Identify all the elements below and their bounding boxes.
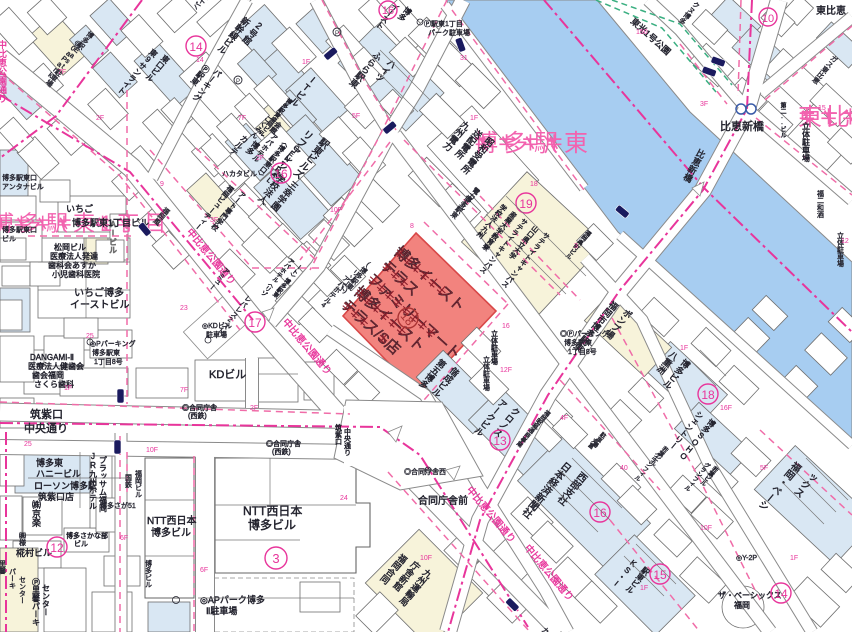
svg-text:1F: 1F xyxy=(790,555,798,562)
svg-text:博多ビル: 博多ビル xyxy=(151,526,191,539)
svg-text:ハニービル: ハニービル xyxy=(36,469,81,479)
svg-text:P: P xyxy=(236,79,240,85)
svg-text:◎Y-2P: ◎Y-2P xyxy=(736,555,757,562)
svg-text:13: 13 xyxy=(493,434,507,448)
svg-text:(西鉄): (西鉄) xyxy=(272,447,291,456)
svg-text:㈱様: ㈱様 xyxy=(19,531,27,546)
svg-text:1F: 1F xyxy=(302,59,310,66)
svg-text:1F: 1F xyxy=(470,115,478,122)
svg-text:10F: 10F xyxy=(420,555,432,562)
svg-text:16: 16 xyxy=(382,5,394,17)
svg-text:40: 40 xyxy=(620,465,628,472)
svg-text:博多駅東1丁目ビル: 博多駅東1丁目ビル xyxy=(72,217,149,228)
svg-text:P: P xyxy=(335,31,339,37)
svg-text:◎合同庁舎: ◎合同庁舎 xyxy=(182,403,217,412)
svg-text:ハカタビル: ハカタビル xyxy=(222,169,257,178)
svg-text:7F: 7F xyxy=(180,387,188,394)
svg-text:9: 9 xyxy=(160,181,164,188)
svg-text:福岡ビル: 福岡ビル xyxy=(135,469,143,498)
svg-text:3F: 3F xyxy=(210,217,218,224)
svg-text:第二..ビル: 第二..ビル xyxy=(779,101,786,138)
svg-text:いちご: いちご xyxy=(66,203,93,214)
svg-text:センター: センター xyxy=(19,576,27,604)
svg-text:◎KDビル: ◎KDビル xyxy=(202,321,232,330)
svg-text:合同庁舎前: 合同庁舎前 xyxy=(418,494,468,507)
svg-text:10F: 10F xyxy=(330,207,342,214)
svg-text:6F: 6F xyxy=(200,567,208,574)
svg-text:㈱京楽: ㈱京楽 xyxy=(31,499,41,528)
svg-text:福二和酒: 福二和酒 xyxy=(817,189,825,219)
svg-text:17: 17 xyxy=(248,316,262,330)
svg-text:博多駅東口: 博多駅東口 xyxy=(2,173,37,182)
svg-text:博多駅東口: 博多駅東口 xyxy=(2,225,37,234)
svg-text:12F: 12F xyxy=(500,367,512,374)
svg-text:センター: センター xyxy=(42,584,51,616)
svg-text:イーストビル: イーストビル xyxy=(70,299,130,311)
svg-text:18: 18 xyxy=(530,181,538,188)
svg-text:6F: 6F xyxy=(120,535,128,542)
svg-text:比恵新橋: 比恵新橋 xyxy=(720,119,764,133)
svg-text:筑紫口: 筑紫口 xyxy=(30,407,63,421)
svg-text:立体駐車場: 立体駐車場 xyxy=(483,355,491,392)
svg-text:a: a xyxy=(96,221,100,228)
svg-text:博多駅東: 博多駅東 xyxy=(564,338,592,347)
svg-text:松岡ビル: 松岡ビル xyxy=(54,242,86,252)
svg-text:歯会福岡: 歯会福岡 xyxy=(32,370,64,380)
svg-text:23: 23 xyxy=(180,305,188,312)
svg-text:4F: 4F xyxy=(560,415,568,422)
svg-text:パーク駐車場: パーク駐車場 xyxy=(428,28,470,37)
svg-text:1F: 1F xyxy=(680,345,688,352)
svg-text:Ⅱ駐車場: Ⅱ駐車場 xyxy=(206,605,237,616)
svg-text:筑紫口: 筑紫口 xyxy=(335,423,343,445)
svg-text:10F: 10F xyxy=(700,525,712,532)
svg-text:2F: 2F xyxy=(250,405,258,412)
svg-text:KDビル: KDビル xyxy=(209,368,246,381)
svg-text:15: 15 xyxy=(818,105,826,112)
svg-text:立体駐車場: 立体駐車場 xyxy=(837,231,845,268)
svg-text:12: 12 xyxy=(841,238,849,245)
svg-text:5F: 5F xyxy=(352,113,360,120)
svg-text:ビル: ビル xyxy=(74,539,88,548)
svg-text:中央通り: 中央通り xyxy=(24,422,68,435)
svg-text:14: 14 xyxy=(774,587,788,601)
svg-text:JR九州ホテル: JR九州ホテル xyxy=(89,452,98,510)
svg-text:国鉄: 国鉄 xyxy=(125,474,133,489)
svg-text:医療法人健歯会: 医療法人健歯会 xyxy=(28,361,84,371)
svg-text:1丁目8号: 1丁目8号 xyxy=(568,348,597,356)
svg-text:19: 19 xyxy=(519,197,533,211)
svg-text:博多駅東: 博多駅東 xyxy=(92,348,120,357)
svg-text:アンタナビル: アンタナビル xyxy=(2,182,44,191)
svg-text:里馨: 里馨 xyxy=(0,560,6,575)
svg-text:16: 16 xyxy=(274,167,288,181)
svg-text:いちご博多: いちご博多 xyxy=(74,286,124,299)
svg-text:小児歯科医院: 小児歯科医院 xyxy=(52,269,100,279)
svg-text:2F: 2F xyxy=(96,115,104,122)
svg-text:博多さが51: 博多さが51 xyxy=(100,501,136,510)
svg-text:博多東: 博多東 xyxy=(36,457,63,468)
svg-text:1丁目8号: 1丁目8号 xyxy=(94,358,123,366)
svg-text:14: 14 xyxy=(189,40,203,54)
svg-text:2F: 2F xyxy=(256,155,264,162)
svg-text:12: 12 xyxy=(50,541,64,555)
svg-text:◎Pパーキング: ◎Pパーキング xyxy=(90,339,136,348)
svg-text:25: 25 xyxy=(24,441,32,448)
svg-text:NTT西日本: NTT西日本 xyxy=(243,504,302,518)
svg-text:10F: 10F xyxy=(146,447,158,454)
svg-text:DANGAMI-Ⅱ: DANGAMI-Ⅱ xyxy=(30,353,74,362)
svg-text:立体駐車場: 立体駐車場 xyxy=(491,329,499,366)
svg-text:Ⓟ駅東1丁目: Ⓟ駅東1丁目 xyxy=(424,19,463,28)
svg-text:25: 25 xyxy=(86,333,94,340)
svg-text:医療法人発達: 医療法人発達 xyxy=(50,251,98,261)
svg-text:24: 24 xyxy=(340,495,348,502)
svg-text:5F: 5F xyxy=(760,465,768,472)
svg-text:16: 16 xyxy=(593,506,607,520)
svg-text:1F: 1F xyxy=(64,385,72,392)
svg-text:歯科会あすか: 歯科会あすか xyxy=(48,260,96,270)
svg-text:Ⓟ里馨パーキ: Ⓟ里馨パーキ xyxy=(32,578,41,626)
svg-text:18: 18 xyxy=(701,388,715,402)
svg-text:東比恵: 東比恵 xyxy=(816,4,846,17)
svg-text:10: 10 xyxy=(762,13,774,25)
svg-text:8: 8 xyxy=(410,223,414,230)
svg-text:31: 31 xyxy=(460,55,468,62)
svg-text:7F: 7F xyxy=(58,69,66,76)
svg-text:博多ビル: 博多ビル xyxy=(248,517,296,532)
svg-text:16: 16 xyxy=(502,323,510,330)
svg-text:◎Ⓟパーキング: ◎Ⓟパーキング xyxy=(560,329,609,338)
svg-text:14: 14 xyxy=(196,57,204,64)
svg-text:博多さかな部: 博多さかな部 xyxy=(66,531,108,540)
svg-text:ビル: ビル xyxy=(2,234,16,243)
svg-text:1F: 1F xyxy=(640,585,648,592)
svg-text:150: 150 xyxy=(636,29,648,36)
svg-text:7F: 7F xyxy=(238,115,246,122)
svg-text:中央通り: 中央通り xyxy=(344,427,352,456)
svg-text:博多ビル: 博多ビル xyxy=(145,559,153,588)
svg-text:◎合同庁舎: ◎合同庁舎 xyxy=(266,439,301,448)
svg-text:(西鉄): (西鉄) xyxy=(188,411,207,420)
svg-text:16F: 16F xyxy=(720,405,732,412)
svg-text:NTT西日本: NTT西日本 xyxy=(147,514,196,527)
svg-text:福岡: 福岡 xyxy=(734,601,750,610)
svg-text:15: 15 xyxy=(653,568,667,582)
svg-text:3: 3 xyxy=(272,551,279,566)
svg-text:立体駐車場: 立体駐車場 xyxy=(802,121,811,163)
svg-text:3: 3 xyxy=(574,243,578,250)
svg-text:3F: 3F xyxy=(700,101,708,108)
svg-text:中比恵公園通り: 中比恵公園通り xyxy=(0,39,7,103)
svg-text:◎APパーク博多: ◎APパーク博多 xyxy=(200,594,265,605)
svg-text:筑紫口店: 筑紫口店 xyxy=(38,491,74,502)
svg-text:パーキ: パーキ xyxy=(9,568,17,589)
